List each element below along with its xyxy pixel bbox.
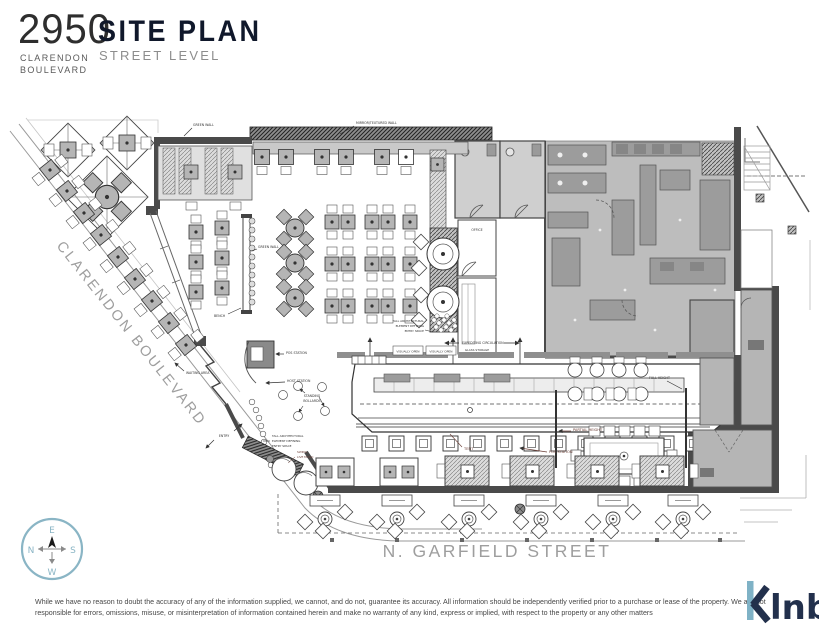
standing-bollards-label: BOLLARDS <box>303 399 320 403</box>
office-label: OFFICE <box>471 228 482 232</box>
green-wall-label: GREEN WALL <box>258 245 279 249</box>
green-wall-zone <box>189 209 314 317</box>
patio-garfield <box>278 494 738 539</box>
office-room: OFFICE <box>458 220 496 276</box>
svg-text:ELEMENT DEFINING: ELEMENT DEFINING <box>272 439 300 443</box>
logo-k-leg <box>753 603 768 621</box>
tall-element-label: TALL ARCHITECTURAL ELEMENT DEFINING ENTR… <box>263 434 304 448</box>
garfield-street-label: N. GARFIELD STREET <box>383 541 612 561</box>
flyer-page: 2950 CLARENDON BOULEVARD SITE PLAN STREE… <box>0 0 827 630</box>
tent-label: TENT <box>463 447 474 451</box>
compass-west: W <box>48 568 57 578</box>
visually-open-label: VISUALLY OPEN <box>396 350 419 354</box>
glass-storage-label: GLASS STORAGE <box>465 348 489 352</box>
compass-south: S <box>70 546 76 556</box>
tall-element-label: TALL ARCHITECTURAL ELEMENT DEFINING ENTR… <box>391 319 433 333</box>
compass-rose: E S W N <box>22 519 82 579</box>
umbrella-table <box>100 116 154 170</box>
expediting-label: EXPEDITING CIRCULATION <box>462 341 504 345</box>
logo-text: lnb <box>770 588 819 626</box>
visually-open-label: VISUALLY OPEN <box>429 350 452 354</box>
svg-text:ELEMENT DEFINING: ELEMENT DEFINING <box>396 324 424 328</box>
swing-seat <box>272 457 296 481</box>
waiting-area-label: WAITING AREA <box>186 371 210 375</box>
full-height-label: FULL HEIGHT <box>649 376 670 380</box>
compass-needle <box>48 536 56 548</box>
booth-row <box>316 456 698 486</box>
standing-bollards-label: STANDING <box>304 394 321 398</box>
mirror-wall-label: MIRROR/TEXTURED WALL <box>356 121 397 125</box>
svg-text:ENTRY SPACE: ENTRY SPACE <box>272 444 292 448</box>
partial-height-label: PARTIAL HEIGHT <box>573 428 603 432</box>
entry-label: ENTRY <box>219 434 229 438</box>
bench-label: BENCH <box>214 314 226 318</box>
dining-grid <box>325 205 417 323</box>
kitchen-area <box>545 141 735 357</box>
swing-seat <box>294 471 318 495</box>
host-station-label: HOST STATION <box>287 379 311 383</box>
disclaimer-text: While we have no reason to doubt the acc… <box>35 597 767 620</box>
compass-north: N <box>28 546 35 556</box>
green-wall-label: GREEN WALL <box>193 123 214 127</box>
round-booths <box>411 228 459 332</box>
svg-text:ENTRY SPACE: ENTRY SPACE <box>405 329 425 333</box>
svg-text:LIVE MUSIC: LIVE MUSIC <box>297 455 314 459</box>
pos-station-label: POS STATION <box>286 351 308 355</box>
compass-east: E <box>49 526 55 536</box>
pos-station-label: POS STATION <box>549 450 573 454</box>
svg-text:SWING: SWING <box>297 450 307 454</box>
klnb-logo: lnb <box>745 578 819 630</box>
floor-plan: OFFICE GLASS STORAGE <box>0 0 827 630</box>
svg-text:TALL ARCHITECTURAL: TALL ARCHITECTURAL <box>271 434 304 438</box>
left-banquette <box>158 146 252 210</box>
svg-text:TALL ARCHITECTURAL: TALL ARCHITECTURAL <box>391 319 424 323</box>
restrooms <box>455 141 545 218</box>
